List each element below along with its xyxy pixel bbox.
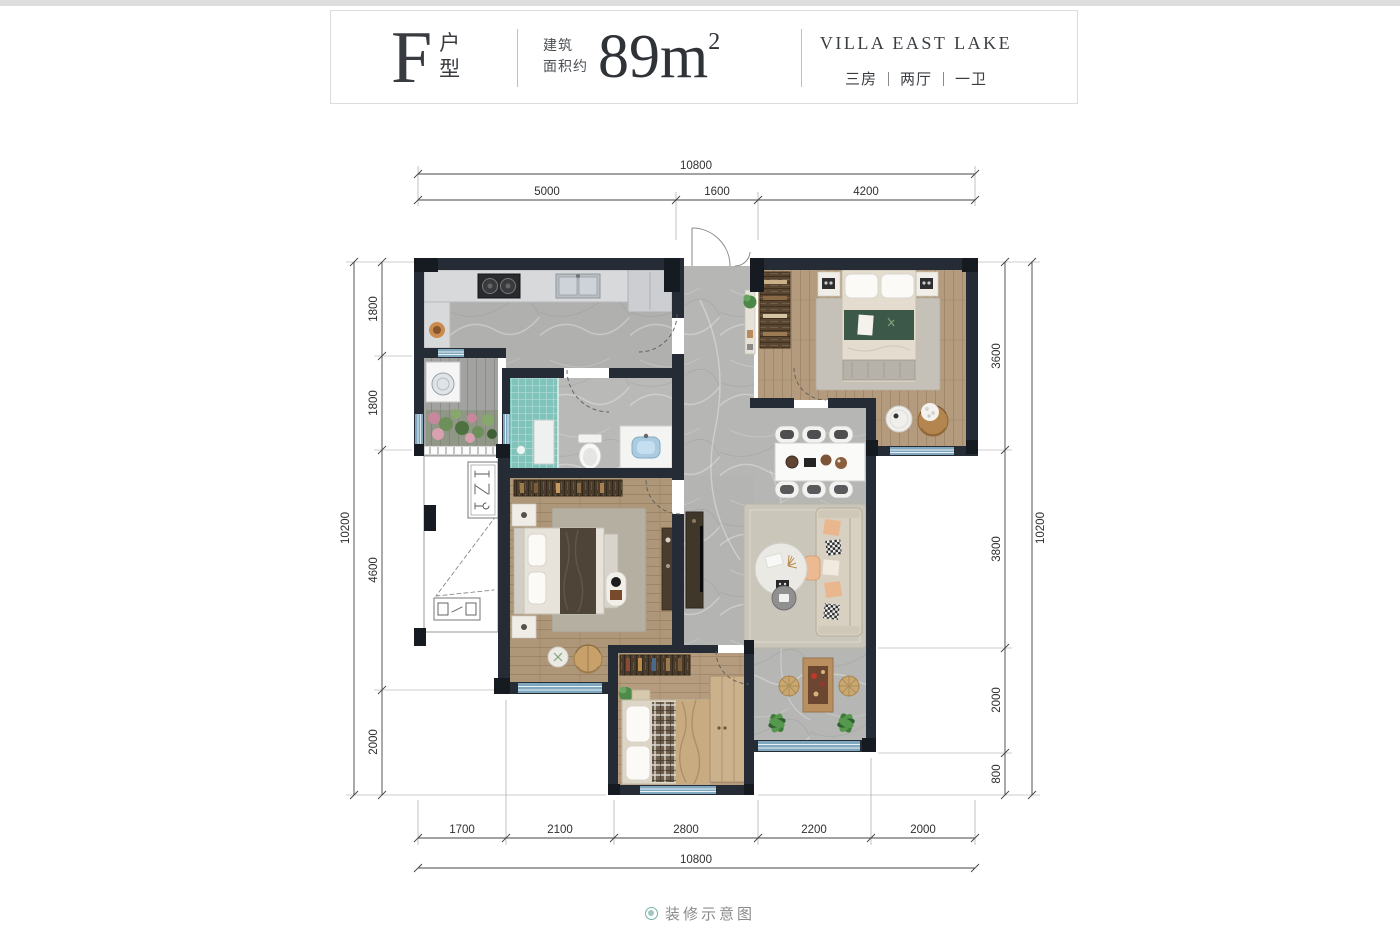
dim-left-seg1: 1800 bbox=[368, 296, 380, 322]
floor-pouf bbox=[839, 676, 859, 696]
window bbox=[518, 683, 602, 693]
bookshelf bbox=[514, 480, 622, 496]
dining-area bbox=[775, 426, 865, 498]
bottom-dim-lines bbox=[414, 834, 979, 872]
window bbox=[438, 349, 464, 357]
dim-right-seg2: 3800 bbox=[991, 536, 1003, 562]
bed-runner bbox=[844, 310, 914, 340]
dim-top-seg2: 1600 bbox=[704, 186, 730, 198]
top-dim-lines bbox=[414, 170, 979, 204]
nightstand bbox=[512, 616, 536, 638]
window bbox=[503, 414, 510, 444]
dim-top-total: 10800 bbox=[680, 160, 712, 172]
left-dim-lines bbox=[350, 258, 386, 799]
flower-bed bbox=[426, 409, 498, 446]
pillow bbox=[626, 706, 650, 742]
double-bed bbox=[514, 528, 618, 614]
equipment-platform bbox=[424, 456, 498, 632]
shower-bench bbox=[534, 420, 554, 464]
bookshelf bbox=[620, 655, 690, 675]
wardrobe bbox=[710, 676, 746, 782]
window bbox=[890, 447, 954, 455]
ac-unit-symbol-lower bbox=[434, 598, 480, 620]
ac-unit-symbol-upper bbox=[468, 462, 498, 518]
right-dim-lines bbox=[1001, 258, 1036, 799]
window bbox=[758, 741, 860, 751]
dim-left-total: 10200 bbox=[340, 512, 352, 544]
pillow bbox=[528, 572, 546, 604]
floor-pouf bbox=[779, 676, 799, 696]
double-bed bbox=[842, 270, 916, 382]
dim-right-seg1: 3600 bbox=[991, 343, 1003, 369]
single-bed bbox=[622, 700, 710, 784]
floor-plan: 10800 5000 1600 4200 1700 2100 2800 2200… bbox=[0, 0, 1400, 933]
window bbox=[415, 414, 423, 444]
dim-bottom-seg4: 2200 bbox=[801, 824, 827, 836]
toilet-icon bbox=[578, 434, 602, 469]
dim-bottom-seg1: 1700 bbox=[449, 824, 475, 836]
dim-top-seg1: 5000 bbox=[534, 186, 560, 198]
dim-left-seg3: 4600 bbox=[368, 557, 380, 583]
bedside-trolley bbox=[606, 572, 626, 606]
nightstand bbox=[512, 504, 536, 526]
footer-caption: 装修示意图 bbox=[665, 903, 755, 924]
window bbox=[640, 786, 716, 794]
balcony-railing bbox=[424, 446, 498, 455]
kitchen-sink-icon bbox=[556, 274, 600, 298]
pillow bbox=[528, 534, 546, 566]
stove-icon bbox=[478, 274, 520, 298]
nightstand bbox=[916, 272, 938, 296]
dim-right-total: 10200 bbox=[1035, 512, 1047, 544]
pillow bbox=[845, 274, 878, 298]
tv-screen bbox=[700, 526, 703, 592]
entry-console bbox=[744, 290, 757, 354]
dim-bottom-seg5: 2000 bbox=[910, 824, 936, 836]
footer: 装修示意图 bbox=[0, 903, 1400, 924]
dim-left-seg4: 2000 bbox=[368, 729, 380, 755]
dim-right-seg3: 2000 bbox=[991, 687, 1003, 713]
dim-right-seg4: 800 bbox=[991, 764, 1003, 783]
wardrobe bbox=[760, 272, 790, 348]
dim-top-seg3: 4200 bbox=[853, 186, 879, 198]
dim-bottom-total: 10800 bbox=[680, 854, 712, 866]
pillow bbox=[881, 274, 914, 298]
dim-left-seg2: 1800 bbox=[368, 390, 380, 416]
dim-bottom-seg2: 2100 bbox=[547, 824, 573, 836]
foot-bench bbox=[843, 360, 915, 380]
decor-circle-icon bbox=[645, 907, 658, 920]
shower-drain-icon bbox=[517, 446, 526, 455]
entry-door bbox=[692, 228, 750, 266]
tv-cabinet bbox=[686, 512, 703, 608]
headboard bbox=[514, 528, 524, 614]
plaid-blanket bbox=[652, 702, 676, 782]
pillow bbox=[626, 746, 650, 780]
vanity-sink-icon bbox=[620, 426, 672, 468]
dim-bottom-seg3: 2800 bbox=[673, 824, 699, 836]
nightstand bbox=[818, 272, 840, 296]
